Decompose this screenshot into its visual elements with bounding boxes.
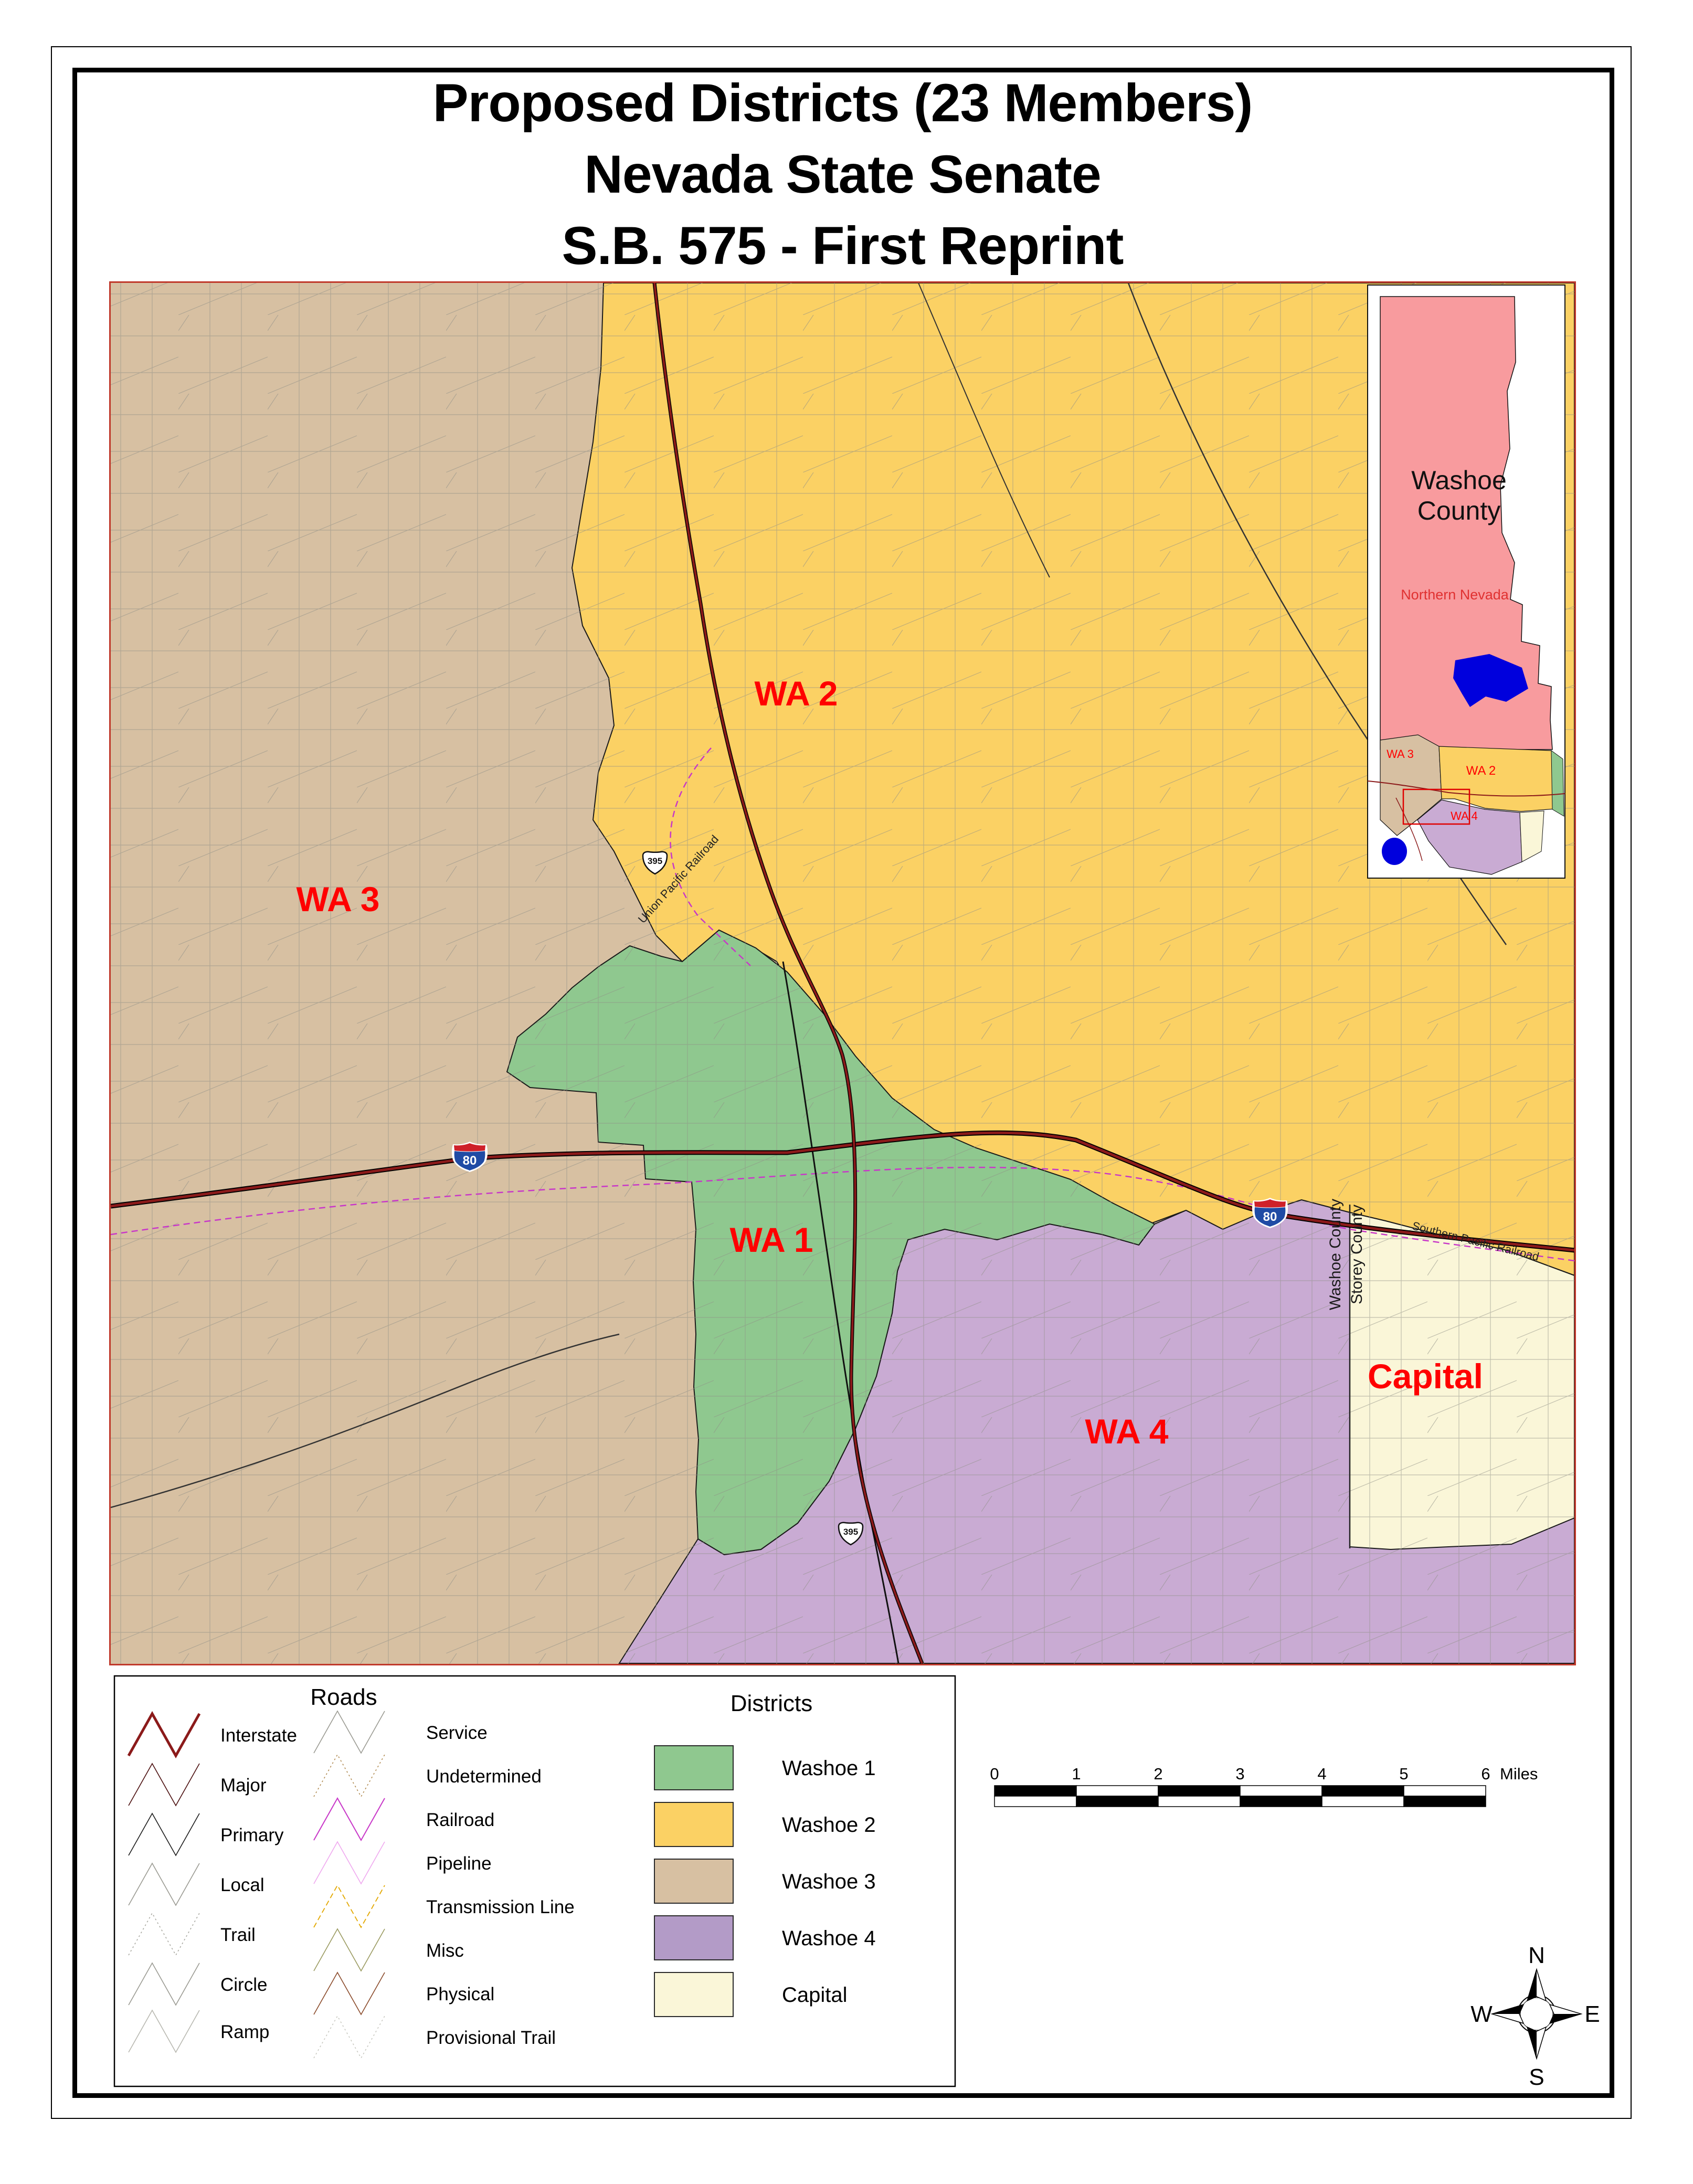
scale-unit: Miles: [1500, 1765, 1538, 1783]
legend-road-local: Local: [220, 1875, 264, 1895]
inset-subtitle: Northern Nevada: [1401, 587, 1509, 603]
legend-district-washoe2: Washoe 2: [782, 1813, 876, 1837]
scale-tick-3: 3: [1235, 1765, 1244, 1783]
legend-road-trail: Trail: [220, 1925, 256, 1945]
legend-districts-title: Districts: [731, 1691, 812, 1716]
inset-title-line1: Washoe: [1411, 466, 1507, 495]
legend-district-capital: Capital: [782, 1983, 848, 2007]
scale-bar: 0 1 2 3 4 5 6 Miles: [990, 1765, 1538, 1807]
main-map: WA 3 WA 2 WA 1 WA 4 Capital Washoe Count…: [111, 283, 1574, 1664]
legend-road-primary: Primary: [220, 1825, 284, 1845]
legend-road-transmission: Transmission Line: [426, 1897, 575, 1917]
scale-tick-6: 6: [1481, 1765, 1490, 1783]
legend-roads-title: Roads: [310, 1684, 377, 1710]
scale-tick-5: 5: [1399, 1765, 1408, 1783]
legend-road-service: Service: [426, 1723, 488, 1743]
inset-label-wa2: WA 2: [1466, 764, 1496, 778]
district-label-wa1: WA 1: [730, 1220, 813, 1259]
legend-road-circle: Circle: [220, 1975, 267, 1995]
washoe4-swatch: [654, 1916, 733, 1960]
legend-road-provisional-trail: Provisional Trail: [426, 2028, 556, 2048]
district-label-wa2: WA 2: [755, 674, 838, 713]
inset-title-line2: County: [1417, 496, 1500, 525]
inset-label-wa4: WA 4: [1451, 809, 1478, 822]
inset-label-wa3: WA 3: [1387, 747, 1414, 761]
scale-tick-0: 0: [990, 1765, 999, 1783]
legend-road-ramp: Ramp: [220, 2022, 269, 2042]
capital-swatch: [654, 1972, 733, 2017]
compass-rose-icon: N S W E: [1470, 1943, 1600, 2090]
district-label-wa4: WA 4: [1085, 1412, 1169, 1451]
district-label-wa3: WA 3: [297, 880, 380, 919]
legend-district-washoe1: Washoe 1: [782, 1757, 876, 1780]
compass-north-label: N: [1528, 1943, 1545, 1968]
compass-east-label: E: [1584, 2001, 1600, 2027]
washoe2-swatch: [654, 1802, 733, 1847]
legend-road-major: Major: [220, 1775, 267, 1796]
washoe3-swatch: [654, 1859, 733, 1903]
legend-road-physical: Physical: [426, 1984, 494, 2004]
washoe1-swatch: [654, 1746, 733, 1790]
inset-lake-tahoe: [1382, 838, 1407, 865]
map-sheet: 80 395 WA 3 WA 2 WA 1: [0, 0, 1693, 2184]
scale-bar-cells: [994, 1786, 1486, 1807]
compass-west-label: W: [1470, 2001, 1493, 2027]
legend-road-railroad: Railroad: [426, 1810, 494, 1830]
legend-road-undetermined: Undetermined: [426, 1766, 542, 1787]
legend-district-washoe3: Washoe 3: [782, 1870, 876, 1893]
legend-road-interstate: Interstate: [220, 1725, 297, 1746]
scale-tick-4: 4: [1317, 1765, 1326, 1783]
legend-road-pipeline: Pipeline: [426, 1853, 492, 1874]
inset-wa1-region: [1551, 751, 1564, 816]
compass-south-label: S: [1529, 2064, 1544, 2090]
street-grid-texture: [111, 283, 1574, 1664]
district-label-capital: Capital: [1368, 1357, 1483, 1396]
washoe-county-label: Washoe County: [1327, 1199, 1344, 1310]
scale-tick-2: 2: [1154, 1765, 1162, 1783]
scale-tick-1: 1: [1072, 1765, 1081, 1783]
legend-panel: Roads Interstate Major Primary Local Tra…: [114, 1676, 955, 2086]
storey-county-label: Storey County: [1348, 1205, 1366, 1304]
legend-road-misc: Misc: [426, 1940, 464, 1961]
legend-district-washoe4: Washoe 4: [782, 1927, 876, 1950]
inset-map: Washoe County Northern Nevada WA 3 WA 2 …: [1368, 285, 1565, 878]
